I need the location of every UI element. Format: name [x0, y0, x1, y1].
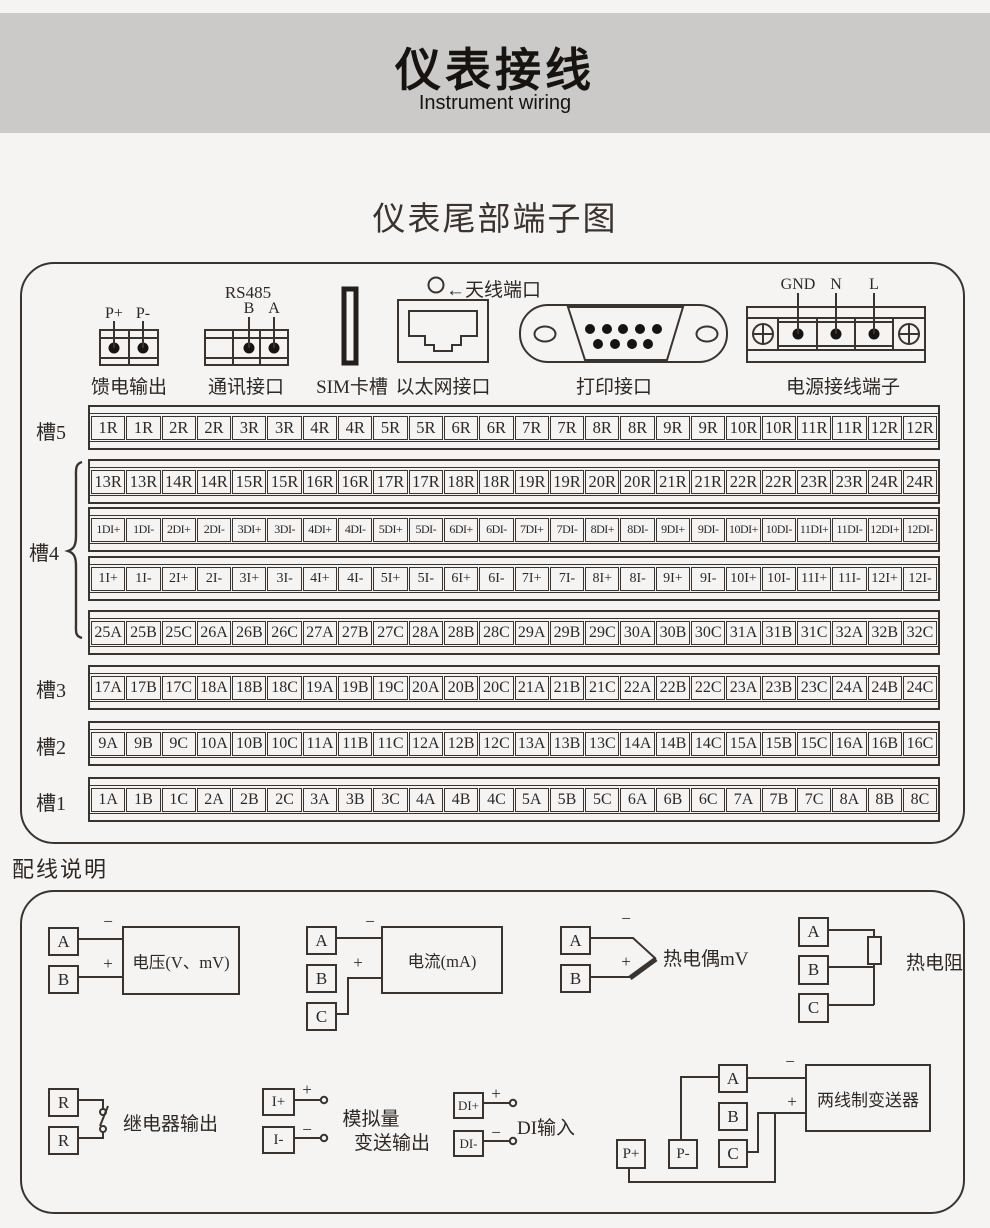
terminal-cell: 7A — [726, 788, 760, 812]
terminal-cell: 31B — [762, 621, 796, 645]
terminal-cell: 1C — [162, 788, 196, 812]
terminal-row-slot4-i: 1I+1I-2I+2I-3I+3I-4I+4I-5I+5I-6I+6I-7I+7… — [88, 556, 940, 601]
terminal-cell: 20B — [444, 676, 478, 700]
terminal-cell: 14B — [656, 732, 690, 756]
terminal-box-c: C — [718, 1139, 748, 1168]
terminal-cell: 4A — [409, 788, 443, 812]
terminal-cell: 7R — [515, 416, 549, 440]
terminal-cell: 5C — [585, 788, 619, 812]
thermocouple-label: 热电偶mV — [663, 944, 749, 971]
terminal-cell: 19R — [515, 470, 549, 494]
terminal-cell: 13R — [126, 470, 160, 494]
terminal-cell: 11A — [303, 732, 337, 756]
ethernet-caption: 以太网接口 — [373, 372, 513, 399]
terminal-cell: 2R — [197, 416, 231, 440]
terminal-cell: 3B — [338, 788, 372, 812]
analog-out-label-line1: 模拟量 — [321, 1104, 421, 1131]
terminal-cell: 20R — [585, 470, 619, 494]
relay-wires — [75, 1100, 108, 1138]
minus-sign: − — [360, 912, 380, 932]
terminal-cell: 2R — [162, 416, 196, 440]
terminal-cell: 8DI- — [620, 518, 654, 542]
terminal-cell: 9I+ — [656, 567, 690, 591]
terminal-cell: 17A — [91, 676, 125, 700]
terminal-cell: 9I- — [691, 567, 725, 591]
terminal-cell: 6R — [479, 416, 513, 440]
terminal-rail — [90, 757, 938, 764]
power-terminal-icon — [747, 293, 925, 362]
terminal-cell: 18C — [267, 676, 301, 700]
terminal-row-slot4-di: 1DI+1DI-2DI+2DI-3DI+3DI-4DI+4DI-5DI+5DI-… — [88, 507, 940, 552]
feed-output-caption: 馈电输出 — [69, 372, 189, 399]
terminal-cell: 7I- — [550, 567, 584, 591]
feed-output-terminal-icon — [100, 321, 158, 365]
terminal-cell: 29A — [515, 621, 549, 645]
terminal-box-p-minus: P- — [668, 1139, 698, 1169]
terminal-cell: 24R — [868, 470, 902, 494]
terminal-box-a: A — [798, 917, 829, 947]
terminal-cell: 21R — [656, 470, 690, 494]
terminal-cell: 17B — [126, 676, 160, 700]
terminal-cell: 23C — [797, 676, 831, 700]
terminal-cell: 18B — [232, 676, 266, 700]
terminal-row-slot5: 1R1R2R2R3R3R4R4R5R5R6R6R7R7R8R8R9R9R10R1… — [88, 405, 940, 450]
terminal-cell: 28A — [409, 621, 443, 645]
terminal-cell: 2A — [197, 788, 231, 812]
terminal-cell: 32A — [832, 621, 866, 645]
terminal-cell: 1R — [126, 416, 160, 440]
terminal-cell: 16A — [832, 732, 866, 756]
terminal-row-slot4-abc: 25A25B25C26A26B26C27A27B27C28A28B28C29A2… — [88, 610, 940, 655]
terminal-cell: 10DI- — [762, 518, 796, 542]
terminal-cell: 10I- — [762, 567, 796, 591]
pin-label-gnd: GND — [776, 276, 820, 294]
terminal-box-b: B — [798, 955, 829, 985]
terminal-cell: 18R — [444, 470, 478, 494]
terminal-cell: 4B — [444, 788, 478, 812]
terminal-cell: 21B — [550, 676, 584, 700]
pin-label-b: B — [236, 300, 262, 318]
terminal-cell: 10I+ — [726, 567, 760, 591]
terminal-cell: 12B — [444, 732, 478, 756]
terminal-rail — [90, 495, 938, 502]
terminal-rail — [90, 543, 938, 550]
plus-sign: + — [486, 1084, 506, 1104]
slot5-label: 槽5 — [36, 416, 66, 445]
terminal-cell: 9R — [691, 416, 725, 440]
terminal-section-title: 仪表尾部端子图 — [0, 192, 990, 240]
terminal-cell: 24A — [832, 676, 866, 700]
terminal-cell: 9R — [656, 416, 690, 440]
current-device-box: 电流(mA) — [381, 926, 503, 994]
terminal-box-a: A — [48, 927, 79, 956]
terminal-box-di-minus: DI- — [453, 1130, 484, 1157]
terminal-box-c: C — [798, 993, 829, 1023]
terminal-cell: 15R — [232, 470, 266, 494]
terminal-cell: 14R — [197, 470, 231, 494]
terminal-cell: 22B — [656, 676, 690, 700]
comm-port-caption: 通讯接口 — [186, 372, 306, 399]
terminal-cell: 4I+ — [303, 567, 337, 591]
terminal-cell: 27C — [373, 621, 407, 645]
terminal-rail — [90, 646, 938, 653]
rtd-label: 热电阻 — [906, 948, 963, 975]
terminal-cell: 1R — [91, 416, 125, 440]
terminal-cell: 10C — [267, 732, 301, 756]
terminal-rail — [90, 407, 938, 414]
terminal-cell: 12A — [409, 732, 443, 756]
pin-label-n: N — [824, 276, 848, 294]
pin-label-l: L — [862, 276, 886, 294]
terminal-cell: 28B — [444, 621, 478, 645]
slot4-label: 槽4 — [29, 537, 59, 566]
antenna-port-label: ←天线端口 — [446, 275, 541, 302]
terminal-cell: 6C — [691, 788, 725, 812]
terminal-cell: 19B — [338, 676, 372, 700]
terminal-cell: 4R — [338, 416, 372, 440]
terminal-cell: 4DI- — [338, 518, 372, 542]
terminal-cell: 2I- — [197, 567, 231, 591]
minus-sign: − — [297, 1120, 317, 1140]
slot4-brace — [68, 462, 82, 638]
transmitter-wires — [629, 1077, 805, 1182]
terminal-cell: 1I+ — [91, 567, 125, 591]
terminal-box-a: A — [306, 926, 337, 955]
terminal-row-slot1: 1A1B1C2A2B2C3A3B3C4A4B4C5A5B5C6A6B6C7A7B… — [88, 777, 940, 822]
terminal-cell: 2DI- — [197, 518, 231, 542]
terminal-cell: 27B — [338, 621, 372, 645]
terminal-cell: 11DI+ — [797, 518, 831, 542]
terminal-cell: 5I- — [409, 567, 443, 591]
terminal-cell: 9A — [91, 732, 125, 756]
terminal-rail — [90, 509, 938, 516]
terminal-cell: 13B — [550, 732, 584, 756]
terminal-cell: 1A — [91, 788, 125, 812]
terminal-cell: 32C — [903, 621, 937, 645]
terminal-cell: 24R — [903, 470, 937, 494]
terminal-cell: 22A — [620, 676, 654, 700]
pin-label-a: A — [261, 300, 287, 318]
terminal-cell: 8I- — [620, 567, 654, 591]
terminal-cell: 6DI- — [479, 518, 513, 542]
terminal-cell: 5B — [550, 788, 584, 812]
terminal-rail — [90, 592, 938, 599]
minus-sign: − — [616, 909, 636, 929]
terminal-cell: 28C — [479, 621, 513, 645]
terminal-cell: 15B — [762, 732, 796, 756]
terminal-cell: 29C — [585, 621, 619, 645]
terminal-rail — [90, 461, 938, 468]
terminal-cell: 23A — [726, 676, 760, 700]
terminal-cell: 7DI+ — [515, 518, 549, 542]
voltage-device-box: 电压(V、mV) — [122, 926, 240, 995]
terminal-cell: 32B — [868, 621, 902, 645]
slot2-label: 槽2 — [36, 731, 66, 760]
terminal-cell: 3DI+ — [232, 518, 266, 542]
plus-sign: + — [98, 954, 118, 974]
terminal-rail — [90, 779, 938, 786]
terminal-cell: 10R — [762, 416, 796, 440]
terminal-cell: 11B — [338, 732, 372, 756]
terminal-cell: 1I- — [126, 567, 160, 591]
terminal-cell: 4DI+ — [303, 518, 337, 542]
terminal-rail — [90, 667, 938, 674]
analog-out-label-line2: 变送输出 — [332, 1128, 452, 1155]
terminal-cell: 1DI+ — [91, 518, 125, 542]
terminal-cell: 8A — [832, 788, 866, 812]
slot3-label: 槽3 — [36, 674, 66, 703]
terminal-cell: 5A — [515, 788, 549, 812]
terminal-cell: 2C — [267, 788, 301, 812]
terminal-cell: 16C — [903, 732, 937, 756]
terminal-cell: 19A — [303, 676, 337, 700]
terminal-cell: 18A — [197, 676, 231, 700]
terminal-rail — [90, 558, 938, 565]
current-wires — [333, 938, 381, 1014]
terminal-row-slot3: 17A17B17C18A18B18C19A19B19C20A20B20C21A2… — [88, 665, 940, 710]
terminal-cell: 11R — [832, 416, 866, 440]
terminal-cell: 1B — [126, 788, 160, 812]
terminal-cell: 26A — [197, 621, 231, 645]
terminal-cell: 29B — [550, 621, 584, 645]
print-port-caption: 打印接口 — [554, 372, 674, 399]
terminal-cell: 30B — [656, 621, 690, 645]
terminal-cell: 14R — [162, 470, 196, 494]
wiring-section-title: 配线说明 — [12, 852, 108, 884]
terminal-rail — [90, 723, 938, 730]
terminal-cell: 3R — [267, 416, 301, 440]
terminal-cell: 8R — [585, 416, 619, 440]
terminal-cell: 17R — [373, 470, 407, 494]
plus-sign: + — [348, 953, 368, 973]
plus-sign: + — [616, 952, 636, 972]
terminal-cell: 19R — [550, 470, 584, 494]
terminal-cell: 9DI- — [691, 518, 725, 542]
terminal-cell: 8C — [903, 788, 937, 812]
terminal-cell: 25A — [91, 621, 125, 645]
terminal-cell: 23R — [832, 470, 866, 494]
terminal-box-c: C — [306, 1002, 337, 1031]
terminal-cell: 3DI- — [267, 518, 301, 542]
terminal-cell: 30C — [691, 621, 725, 645]
terminal-cell: 20C — [479, 676, 513, 700]
terminal-cell: 17R — [409, 470, 443, 494]
terminal-cell: 11I- — [832, 567, 866, 591]
terminal-cell: 12I+ — [868, 567, 902, 591]
relay-label: 继电器输出 — [123, 1109, 218, 1136]
terminal-cell: 3A — [303, 788, 337, 812]
terminal-cell: 7R — [550, 416, 584, 440]
terminal-cell: 3I- — [267, 567, 301, 591]
terminal-cell: 10B — [232, 732, 266, 756]
terminal-cell: 31C — [797, 621, 831, 645]
slot1-label: 槽1 — [36, 787, 66, 816]
terminal-cell: 21A — [515, 676, 549, 700]
terminal-cell: 5R — [409, 416, 443, 440]
terminal-cell: 26B — [232, 621, 266, 645]
page-subtitle: Instrument wiring — [0, 92, 990, 115]
print-port-icon — [520, 305, 727, 362]
terminal-cell: 13R — [91, 470, 125, 494]
terminal-cell: 25B — [126, 621, 160, 645]
terminal-cell: 27A — [303, 621, 337, 645]
plus-sign: + — [782, 1092, 802, 1112]
terminal-cell: 11DI- — [832, 518, 866, 542]
di-input-label: DI输入 — [517, 1113, 575, 1140]
minus-sign: − — [780, 1052, 800, 1072]
comm-port-terminal-icon — [205, 317, 288, 365]
terminal-cell: 31A — [726, 621, 760, 645]
terminal-cell: 4R — [303, 416, 337, 440]
terminal-cell: 1DI- — [126, 518, 160, 542]
terminal-cell: 16B — [868, 732, 902, 756]
terminal-cell: 6DI+ — [444, 518, 478, 542]
terminal-cell: 7C — [797, 788, 831, 812]
terminal-cell: 30A — [620, 621, 654, 645]
terminal-rail — [90, 701, 938, 708]
ethernet-port-icon — [398, 300, 488, 362]
terminal-box-b: B — [718, 1102, 748, 1131]
pin-label-p-plus: P+ — [101, 305, 127, 323]
terminal-box-a: A — [560, 926, 591, 955]
terminal-box-p-plus: P+ — [616, 1139, 646, 1169]
terminal-cell: 6I- — [479, 567, 513, 591]
terminal-box-b: B — [48, 965, 79, 994]
terminal-cell: 9DI+ — [656, 518, 690, 542]
terminal-cell: 6R — [444, 416, 478, 440]
terminal-box-r: R — [48, 1126, 79, 1155]
pin-label-p-minus: P- — [130, 305, 156, 323]
plus-sign: + — [297, 1080, 317, 1100]
terminal-cell: 17C — [162, 676, 196, 700]
wiring-panel-diagram: A B 电压(V、mV) − + A B C 电流(mA) − + A B − … — [20, 890, 965, 1214]
terminal-cell: 15R — [267, 470, 301, 494]
terminal-cell: 2DI+ — [162, 518, 196, 542]
minus-sign: − — [486, 1123, 506, 1143]
page: 仪表接线 Instrument wiring 仪表尾部端子图 — [0, 0, 990, 1228]
terminal-cell: 18R — [479, 470, 513, 494]
terminal-cell: 8DI+ — [585, 518, 619, 542]
terminal-cell: 9B — [126, 732, 160, 756]
terminal-box-r: R — [48, 1088, 79, 1117]
terminal-cell: 21R — [691, 470, 725, 494]
rtd-wires — [825, 930, 881, 1005]
terminal-cell: 12DI- — [903, 518, 937, 542]
terminal-cell: 2I+ — [162, 567, 196, 591]
sim-slot-icon — [344, 289, 356, 363]
terminal-rail — [90, 813, 938, 820]
terminal-cell: 16R — [303, 470, 337, 494]
terminal-row-slot2: 9A9B9C10A10B10C11A11B11C12A12B12C13A13B1… — [88, 721, 940, 766]
terminal-rail — [90, 441, 938, 448]
terminal-cell: 10R — [726, 416, 760, 440]
terminal-cell: 3C — [373, 788, 407, 812]
terminal-cell: 22R — [726, 470, 760, 494]
terminal-cell: 6I+ — [444, 567, 478, 591]
terminal-cell: 7B — [762, 788, 796, 812]
terminal-cell: 14A — [620, 732, 654, 756]
terminal-cell: 12R — [868, 416, 902, 440]
terminal-cell: 12C — [479, 732, 513, 756]
terminal-cell: 20R — [620, 470, 654, 494]
terminal-cell: 11R — [797, 416, 831, 440]
terminal-cell: 5DI- — [409, 518, 443, 542]
terminal-box-i-plus: I+ — [262, 1088, 295, 1116]
terminal-cell: 8B — [868, 788, 902, 812]
terminal-cell: 3R — [232, 416, 266, 440]
terminal-cell: 5R — [373, 416, 407, 440]
terminal-cell: 20A — [409, 676, 443, 700]
terminal-cell: 14C — [691, 732, 725, 756]
terminal-cell: 2B — [232, 788, 266, 812]
terminal-cell: 10DI+ — [726, 518, 760, 542]
terminal-cell: 24B — [868, 676, 902, 700]
terminal-cell: 15A — [726, 732, 760, 756]
terminal-box-b: B — [306, 964, 337, 993]
terminal-cell: 24C — [903, 676, 937, 700]
terminal-cell: 10A — [197, 732, 231, 756]
terminal-cell: 16R — [338, 470, 372, 494]
terminal-cell: 22R — [762, 470, 796, 494]
terminal-cell: 4I- — [338, 567, 372, 591]
terminal-box-i-minus: I- — [262, 1126, 295, 1154]
terminal-cell: 22C — [691, 676, 725, 700]
terminal-cell: 11I+ — [797, 567, 831, 591]
page-title: 仪表接线 — [0, 34, 990, 100]
terminal-cell: 4C — [479, 788, 513, 812]
terminal-cell: 13C — [585, 732, 619, 756]
terminal-cell: 12DI+ — [868, 518, 902, 542]
terminal-cell: 3I+ — [232, 567, 266, 591]
terminal-cell: 12I- — [903, 567, 937, 591]
terminal-cell: 21C — [585, 676, 619, 700]
terminal-box-b: B — [560, 964, 591, 993]
terminal-cell: 15C — [797, 732, 831, 756]
terminal-cell: 13A — [515, 732, 549, 756]
terminal-rail — [90, 612, 938, 619]
minus-sign: − — [98, 912, 118, 932]
terminal-cell: 8I+ — [585, 567, 619, 591]
antenna-port-icon — [429, 278, 444, 293]
terminal-cell: 6B — [656, 788, 690, 812]
terminal-cell: 23B — [762, 676, 796, 700]
terminal-cell: 7I+ — [515, 567, 549, 591]
terminal-cell: 23R — [797, 470, 831, 494]
terminal-cell: 25C — [162, 621, 196, 645]
transmitter-device-box: 两线制变送器 — [805, 1064, 931, 1132]
power-terminal-caption: 电源接线端子 — [768, 372, 918, 399]
rear-panel-diagram: P+ P- RS485 B A ←天线端口 GND N L 馈电输出 通讯接口 … — [20, 262, 965, 844]
terminal-cell: 7DI- — [550, 518, 584, 542]
terminal-cell: 5DI+ — [373, 518, 407, 542]
terminal-cell: 12R — [903, 416, 937, 440]
terminal-box-di-plus: DI+ — [453, 1092, 484, 1119]
terminal-box-a: A — [718, 1064, 748, 1093]
terminal-cell: 8R — [620, 416, 654, 440]
terminal-cell: 19C — [373, 676, 407, 700]
terminal-cell: 11C — [373, 732, 407, 756]
terminal-cell: 5I+ — [373, 567, 407, 591]
terminal-cell: 6A — [620, 788, 654, 812]
terminal-row-slot4-relay: 13R13R14R14R15R15R16R16R17R17R18R18R19R1… — [88, 459, 940, 504]
terminal-cell: 9C — [162, 732, 196, 756]
terminal-cell: 26C — [267, 621, 301, 645]
